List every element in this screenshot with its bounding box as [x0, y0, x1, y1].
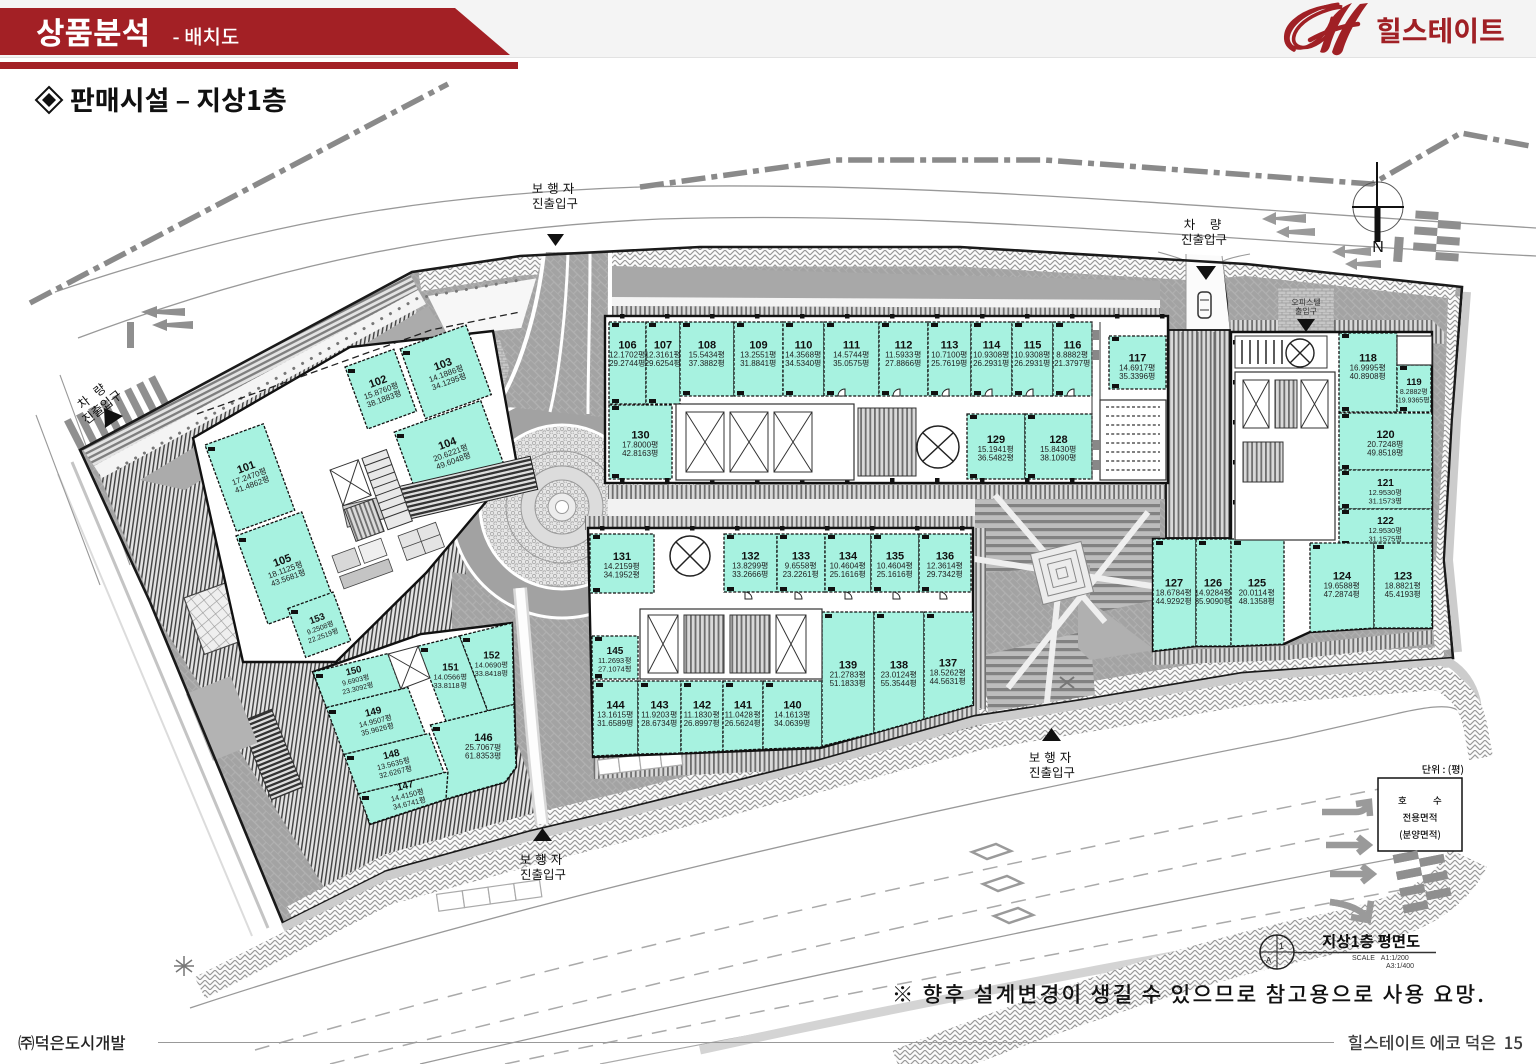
svg-text:42.8163: 42.8163	[622, 449, 651, 458]
svg-text:119: 119	[1406, 377, 1421, 388]
svg-text:26.2931: 26.2931	[1014, 359, 1043, 368]
svg-text:48.1358: 48.1358	[1239, 597, 1268, 606]
svg-text:26.8997: 26.8997	[684, 719, 713, 728]
svg-text:1: 1	[1279, 941, 1284, 951]
svg-text:A3:1/400: A3:1/400	[1386, 963, 1414, 970]
svg-text:47.2874: 47.2874	[1324, 590, 1353, 599]
svg-text:31.1573: 31.1573	[1369, 497, 1396, 506]
svg-text:35.9090: 35.9090	[1195, 597, 1224, 606]
svg-text:45.4193: 45.4193	[1385, 590, 1414, 599]
svg-text:61.8353: 61.8353	[465, 752, 494, 761]
svg-text:25.7619: 25.7619	[931, 359, 960, 368]
svg-text:49.8518: 49.8518	[1367, 449, 1396, 458]
svg-text:27.1074: 27.1074	[598, 665, 625, 674]
svg-text:33.2666: 33.2666	[732, 570, 761, 579]
svg-text:26.5624: 26.5624	[725, 719, 754, 728]
svg-text:25.1616: 25.1616	[830, 570, 859, 579]
svg-text:31.1575: 31.1575	[1369, 535, 1396, 544]
svg-text:27.8866: 27.8866	[885, 359, 914, 368]
svg-text:8.2882: 8.2882	[1400, 389, 1422, 396]
svg-text:33.8418: 33.8418	[475, 669, 502, 678]
svg-text:31.8841: 31.8841	[740, 359, 769, 368]
svg-text:29.7342: 29.7342	[927, 570, 956, 579]
svg-text:35.0575: 35.0575	[833, 359, 862, 368]
svg-text:36.5482: 36.5482	[978, 454, 1007, 463]
svg-text:23.2261: 23.2261	[783, 570, 812, 579]
svg-text:55.3544: 55.3544	[881, 679, 910, 688]
svg-text:44.9292: 44.9292	[1156, 597, 1185, 606]
svg-text:35.3396: 35.3396	[1119, 372, 1148, 381]
svg-text:26.2931: 26.2931	[973, 359, 1002, 368]
svg-text:34.0639: 34.0639	[774, 719, 803, 728]
svg-text:38.1090: 38.1090	[1040, 454, 1069, 463]
svg-text:33.8118: 33.8118	[434, 681, 460, 690]
svg-text:25.1616: 25.1616	[877, 570, 906, 579]
svg-text:29.6254: 29.6254	[645, 359, 674, 368]
svg-text:A: A	[1266, 956, 1272, 965]
svg-text:44.5631: 44.5631	[930, 677, 959, 686]
svg-text:N: N	[1372, 239, 1384, 256]
svg-text:34.5340: 34.5340	[785, 359, 814, 368]
svg-text:SCALE A1:1/200: SCALE A1:1/200	[1352, 955, 1409, 962]
svg-text:19.9365: 19.9365	[1398, 398, 1423, 405]
svg-text:28.6734: 28.6734	[641, 719, 670, 728]
svg-text:34.1952: 34.1952	[604, 571, 633, 580]
svg-text:40.8908: 40.8908	[1350, 372, 1379, 381]
svg-text:29.2744: 29.2744	[609, 359, 638, 368]
svg-text:37.3882: 37.3882	[689, 359, 718, 368]
svg-text:21.3797: 21.3797	[1054, 359, 1083, 368]
svg-text:31.6589: 31.6589	[597, 719, 626, 728]
svg-text:51.1833: 51.1833	[830, 679, 859, 688]
